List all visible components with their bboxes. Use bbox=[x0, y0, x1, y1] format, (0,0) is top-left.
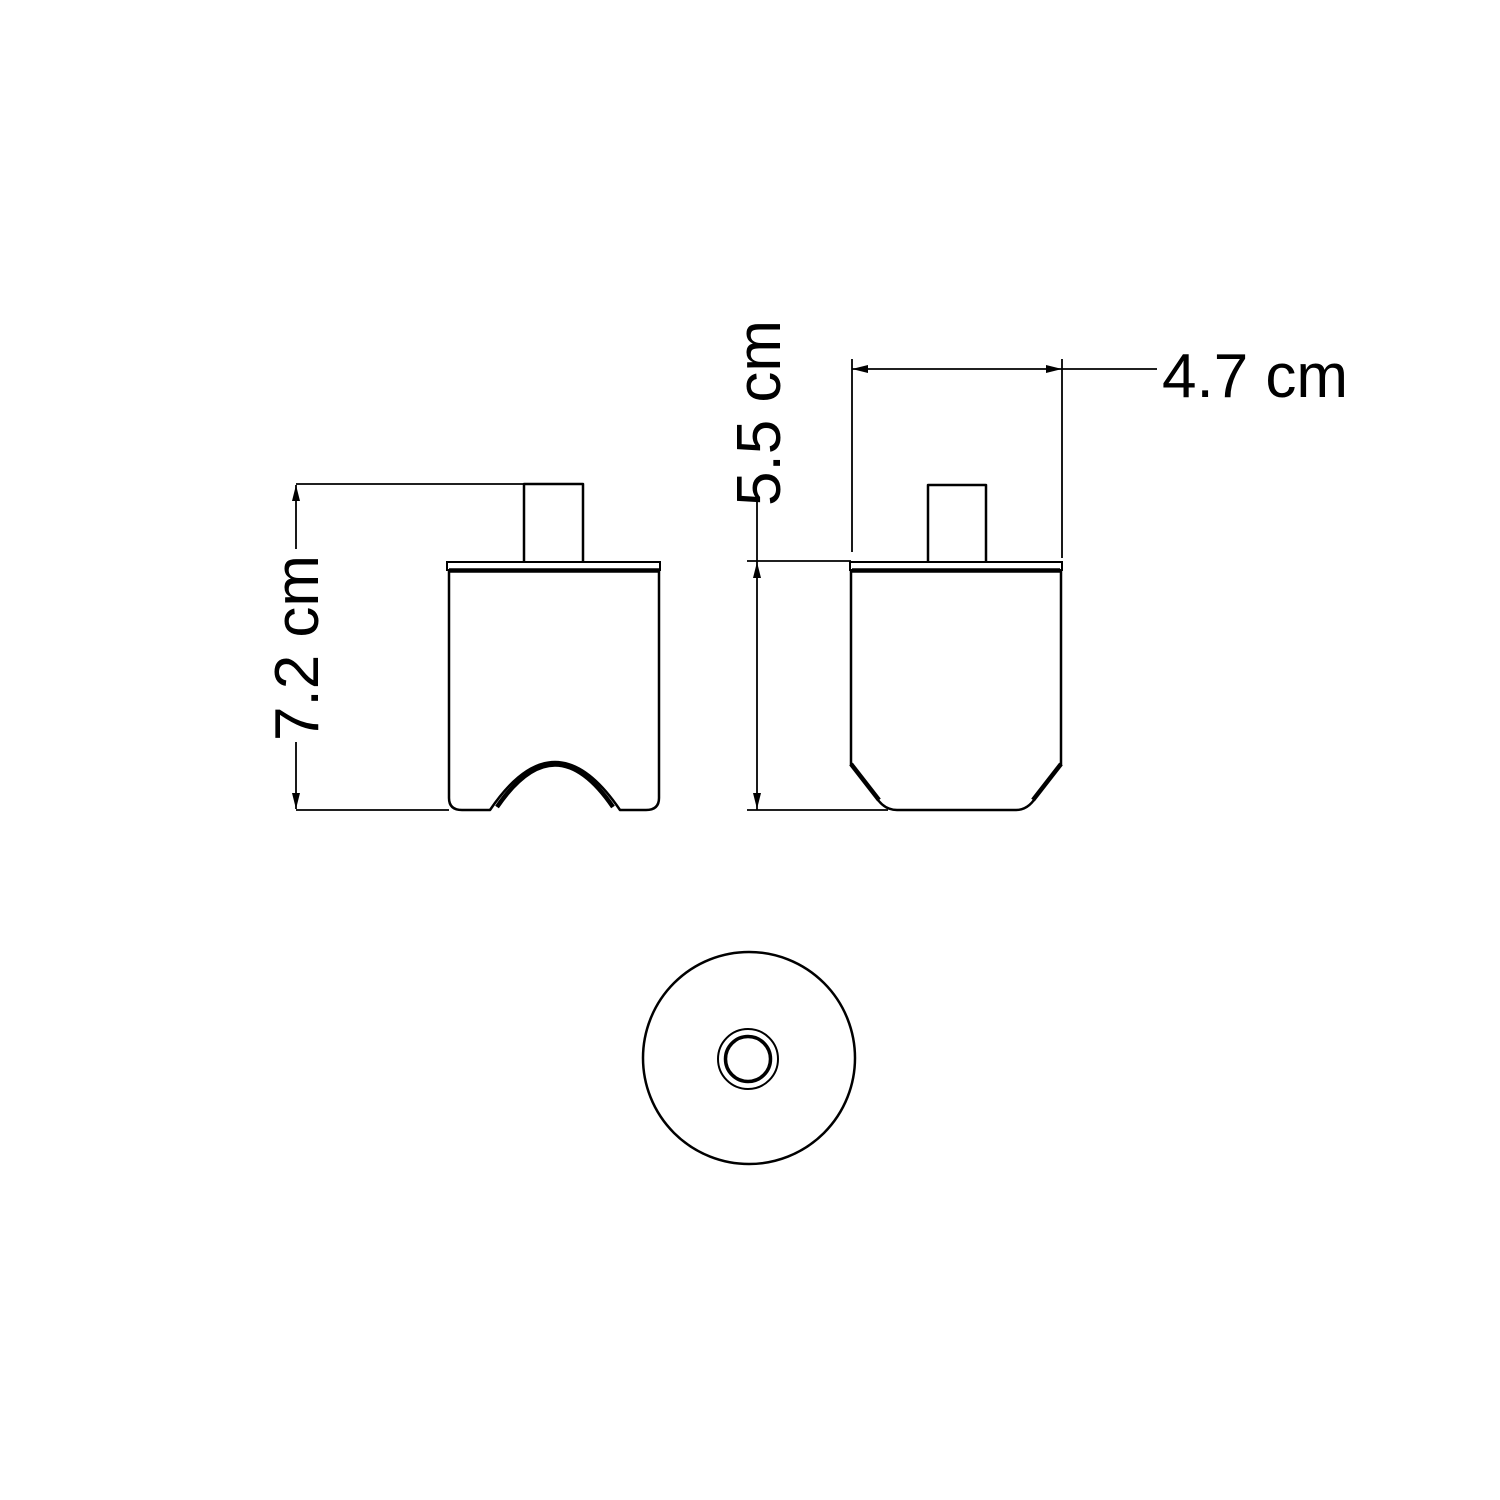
bottom-hole-inner-ring bbox=[726, 1037, 771, 1082]
dimension-label-side-height: 5.5 cm bbox=[725, 320, 794, 506]
arrow-up-icon bbox=[753, 562, 761, 578]
dimension-label-front-height: 7.2 cm bbox=[263, 555, 332, 741]
side-chamfer-left bbox=[851, 764, 879, 800]
side-body-bottom bbox=[876, 797, 1036, 810]
front-view bbox=[447, 484, 660, 810]
technical-drawing-canvas: 7.2 cm 5.5 cm 4.7 cm bbox=[0, 0, 1500, 1500]
dimension-label-side-width: 4.7 cm bbox=[1162, 342, 1348, 411]
arrow-right-icon bbox=[1046, 365, 1062, 373]
side-chamfer-right bbox=[1033, 764, 1061, 800]
arrow-down-icon bbox=[292, 793, 300, 809]
side-body-walls bbox=[851, 571, 1061, 765]
front-body bbox=[449, 571, 659, 810]
side-stem bbox=[928, 485, 986, 562]
arrow-down-icon bbox=[753, 793, 761, 809]
technical-drawing: 7.2 cm 5.5 cm 4.7 cm bbox=[0, 0, 1500, 1500]
dimension-side-height: 5.5 cm bbox=[725, 320, 888, 810]
side-view bbox=[850, 485, 1062, 810]
front-stem bbox=[524, 484, 583, 562]
front-cable-arch-icon bbox=[497, 765, 613, 808]
dimension-side-width: 4.7 cm bbox=[852, 342, 1348, 558]
bottom-outer-circle bbox=[643, 952, 855, 1164]
arrow-left-icon bbox=[852, 365, 868, 373]
arrow-up-icon bbox=[292, 485, 300, 501]
bottom-view bbox=[643, 952, 855, 1164]
dimension-front-height: 7.2 cm bbox=[263, 484, 524, 810]
